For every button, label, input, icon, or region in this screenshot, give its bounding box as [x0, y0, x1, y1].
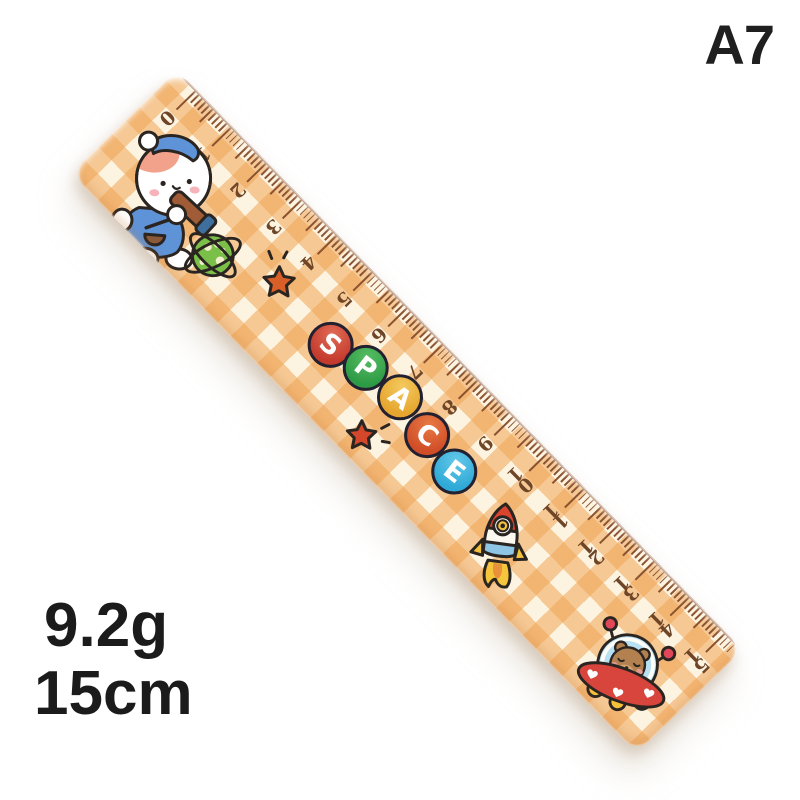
ringed-planet-sticker — [175, 216, 252, 293]
sparkle-star-middle-sticker — [339, 413, 398, 463]
rocket-sticker — [462, 496, 538, 596]
star-icon — [254, 248, 304, 307]
length-label: 15cm — [34, 660, 193, 728]
weight-label: 9.2g — [34, 592, 193, 660]
product-specs: 9.2g 15cm — [34, 592, 193, 728]
bear-ufo-sticker — [557, 598, 701, 733]
product-photo: A7 9.2g 15cm 0123456789101112131415 — [0, 0, 800, 800]
sparkle-star-top-sticker — [254, 248, 304, 307]
star-icon — [339, 413, 398, 463]
bear-ufo-icon — [557, 598, 701, 733]
ringed-planet-icon — [175, 216, 252, 293]
variant-label: A7 — [704, 12, 774, 77]
rocket-icon — [462, 496, 538, 596]
